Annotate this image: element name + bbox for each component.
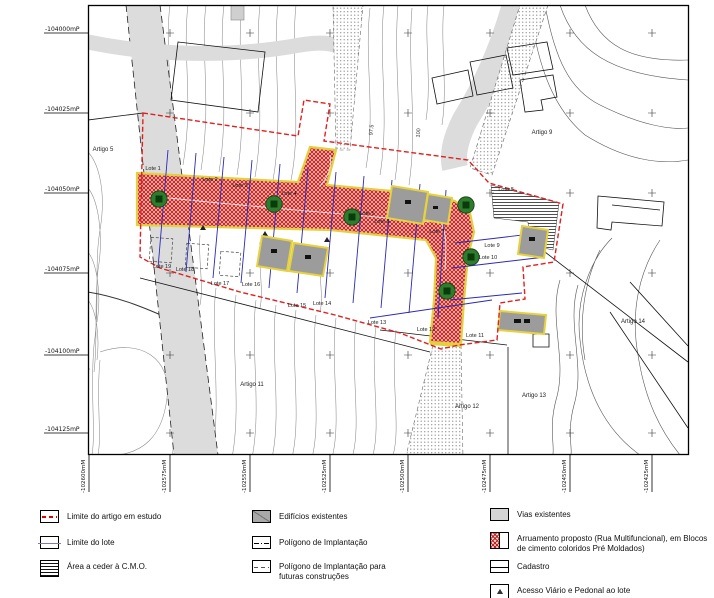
label-lote-10: Lote 10 [479,255,497,261]
legend-label: Cadastro [517,560,549,572]
legend-label: Área a ceder à C.M.O. [67,560,147,572]
legend-item-area-cmo: Área a ceder à C.M.O. [40,560,147,577]
x-axis-label: -102550mM [242,460,248,493]
tree-icon [439,283,455,299]
label-lote-3: Lote 3 [232,183,247,189]
legend-item-vias: Vias existentes [490,508,571,521]
label-contour-97-5: 97.5 [369,124,376,135]
legend-item-arruamento: Arruamento proposto (Rua Multifuncional)… [490,532,707,555]
lot-access-swatch [490,584,509,598]
lot-limit-swatch [40,536,59,549]
legend-label: Limite do lote [67,536,115,548]
tree-icon [463,249,479,265]
y-axis-label: -104100mP [45,348,80,355]
label-lote-2: Lote 2 [202,177,217,183]
label-lote-16: Lote 16 [242,282,260,288]
label-artigo-9: Artigo 9 [532,130,553,136]
label-artigo-13: Artigo 13 [522,393,547,399]
red-hatch-half [491,533,500,548]
label-artigo-5: Artigo 5 [93,147,114,153]
legend-label: Polígono de Implantação [279,536,368,548]
y-axis-label: -104075mP [45,266,80,273]
legend-label: Polígono de Implantação parafuturas cons… [279,560,386,583]
tree-icon [458,197,474,213]
label-lote-17: Lote 17 [211,281,229,287]
label-lote-12: Lote 12 [417,327,435,333]
x-axis-label: -102450mM [562,460,568,493]
label-lote-19: Lote 19 [153,264,171,270]
existing-buildings-swatch [252,510,271,523]
legend-label: Edifícios existentes [279,510,347,522]
label-lote-18: Lote 18 [176,267,194,273]
legend-item-cadastro: Cadastro [490,560,549,573]
tree-icon [151,191,167,207]
existing-roads-swatch [490,508,509,521]
label-lote-8: Lote 8 [498,187,513,193]
label-lote-1: Lote 1 [145,166,160,172]
existing-roads [88,2,548,460]
legend-item-edificios: Edifícios existentes [252,510,347,523]
legend-item-acesso: Acesso Viário e Pedonal ao lote [490,584,630,598]
label-contour-100: 100 [416,128,423,138]
label-lote-7: Lote 7 [429,229,444,235]
x-axis-label: -102575mM [162,460,168,493]
y-axis-label: -104050mP [45,186,80,193]
tree-icon [266,196,282,212]
legend-label: Limite do artigo em estudo [67,510,161,522]
y-axis-label: -104025mP [45,106,80,113]
y-axis-label: -104125mP [45,426,80,433]
x-axis-label: -102525mM [322,460,328,493]
future-implantation-swatch [252,560,271,573]
label-lote-6: Lote 6 [374,219,389,225]
label-artigo-12: Artigo 12 [455,404,480,410]
legend-item-limite-artigo: Limite do artigo em estudo [40,510,161,523]
implantation-polygon-swatch [252,536,271,549]
legend-item-poligono: Polígono de Implantação [252,536,368,549]
label-lote-15: Lote 15 [288,303,306,309]
legend-item-limite-lote: Limite do lote [40,536,115,549]
plan-sheet: Artigo 5 Artigo 9 Artigo 11 Artigo 12 Ar… [0,0,714,598]
label-lote-13: Lote 13 [368,320,386,326]
legend-label: Vias existentes [517,508,571,520]
x-axis-label: -102425mM [644,460,650,493]
site-plan-drawing: Artigo 5 Artigo 9 Artigo 11 Artigo 12 Ar… [0,0,714,500]
label-lote-11: Lote 11 [466,333,484,339]
proposed-street-swatch [490,532,509,549]
label-lote-14: Lote 14 [313,301,331,307]
lot-division-lines [158,150,548,318]
label-lote-5: Lote 5 [359,211,374,217]
label-lote-9: Lote 9 [484,243,499,249]
label-lote-4: Lote 4 [281,191,296,197]
legend-label: Arruamento proposto (Rua Multifuncional)… [517,532,707,555]
legend-item-poligono-futuras: Polígono de Implantação parafuturas cons… [252,560,386,583]
cession-area-swatch [40,560,59,577]
x-axis-label: -102500mM [400,460,406,493]
study-limit-swatch [40,510,59,523]
triangle-icon [497,589,503,594]
legend-label: Acesso Viário e Pedonal ao lote [517,584,630,596]
cadastre-swatch [490,560,509,573]
x-axis: -102600mM -102575mM -102550mM -102525mM … [81,455,652,493]
label-artigo-14: Artigo 14 [621,319,646,325]
x-axis-label: -102475mM [482,460,488,493]
label-contour-87-5: 87.5 [82,367,91,379]
tree-icon [344,209,360,225]
legend: Limite do artigo em estudo Limite do lot… [0,500,714,598]
label-artigo-11: Artigo 11 [240,382,264,388]
x-axis-label: -102600mM [81,460,87,493]
y-axis-label: -104000mP [45,26,80,33]
y-axis: -104000mP -104025mP -104050mP -104075mP … [44,26,88,433]
